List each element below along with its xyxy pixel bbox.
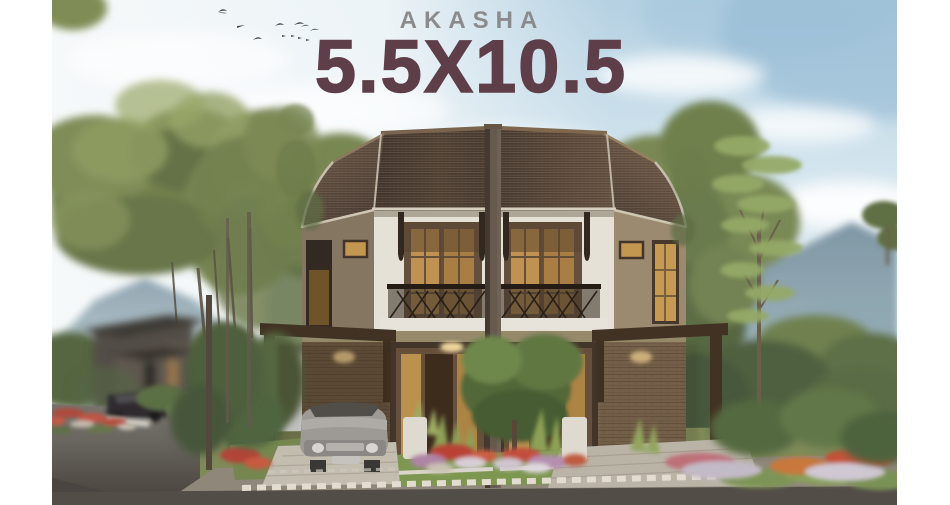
svg-text:5.5X10.5: 5.5X10.5 [315,25,627,108]
